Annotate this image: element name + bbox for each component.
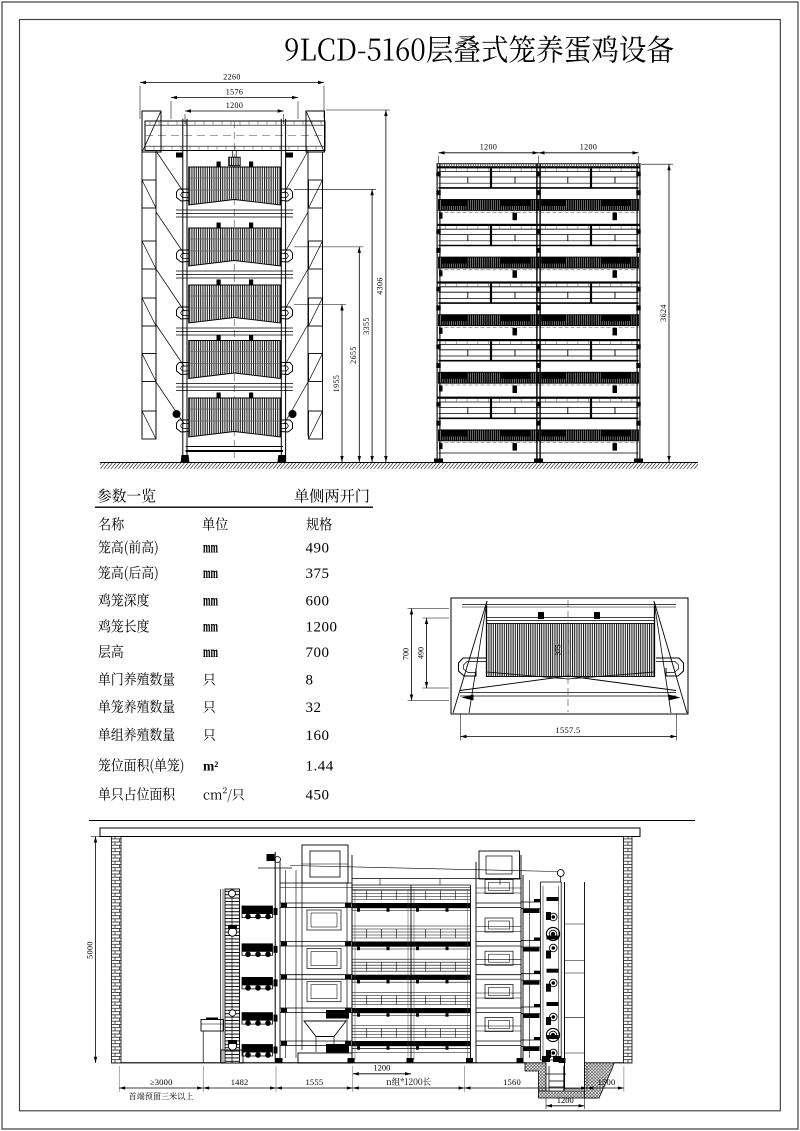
svg-text:3624: 3624 [659, 304, 668, 322]
svg-text:2655: 2655 [349, 346, 358, 364]
svg-text:1200: 1200 [306, 620, 338, 636]
svg-text:m²: m² [203, 759, 218, 774]
svg-text:1560: 1560 [503, 1077, 521, 1087]
svg-text:3355: 3355 [362, 317, 371, 335]
svg-text:mm: mm [203, 593, 218, 610]
svg-text:490: 490 [306, 541, 330, 557]
svg-text:600: 600 [306, 594, 330, 610]
svg-text:1200: 1200 [373, 1063, 390, 1073]
svg-text:1482: 1482 [231, 1077, 249, 1087]
svg-text:≥3000: ≥3000 [150, 1077, 173, 1087]
svg-text:700: 700 [306, 645, 330, 661]
svg-text:1557.5: 1557.5 [555, 725, 580, 735]
svg-text:375: 375 [554, 644, 563, 656]
svg-text:8: 8 [306, 673, 314, 689]
svg-text:160: 160 [306, 728, 330, 744]
svg-text:1955: 1955 [332, 375, 341, 393]
svg-text:mm: mm [203, 644, 218, 661]
svg-text:5000: 5000 [85, 941, 94, 959]
svg-text:mm: mm [203, 619, 218, 636]
svg-text:375: 375 [306, 566, 330, 582]
svg-text:1200: 1200 [557, 1095, 574, 1105]
svg-text:mm: mm [203, 540, 218, 557]
svg-text:4306: 4306 [376, 277, 385, 295]
svg-text:1555: 1555 [305, 1077, 323, 1087]
svg-text:700: 700 [401, 648, 410, 660]
svg-text:1200: 1200 [226, 101, 244, 110]
svg-text:490: 490 [416, 647, 425, 659]
svg-text:1500: 1500 [598, 1077, 616, 1087]
svg-text:2260: 2260 [223, 73, 241, 82]
svg-text:32: 32 [306, 700, 322, 716]
svg-text:1200: 1200 [580, 143, 598, 152]
svg-text:mm: mm [203, 565, 218, 582]
svg-text:1.44: 1.44 [306, 759, 334, 775]
svg-text:1200: 1200 [480, 143, 498, 152]
svg-text:450: 450 [306, 788, 330, 804]
svg-text:1576: 1576 [226, 88, 244, 97]
